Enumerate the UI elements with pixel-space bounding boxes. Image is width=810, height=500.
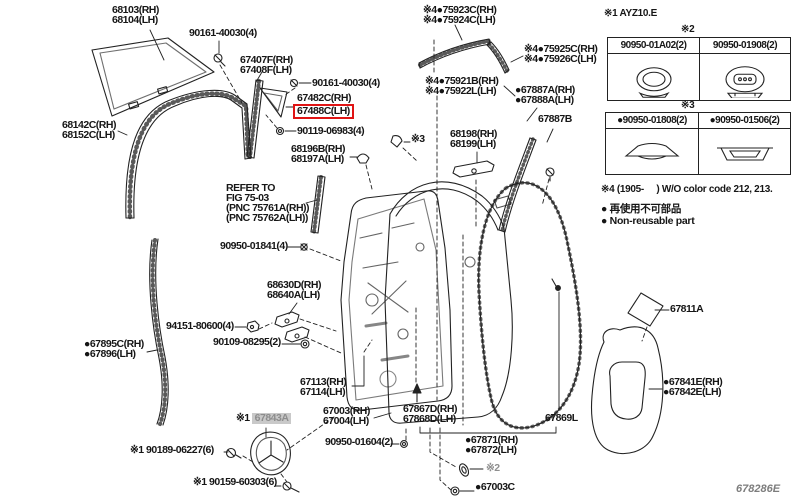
grommet-icon-b <box>699 54 790 100</box>
note-ref3-inline: ※3 <box>411 134 425 144</box>
label-68142C[interactable]: 68142C(RH)68152C(LH) <box>62 120 116 140</box>
note-ref3-inline-text: ※3 <box>411 134 425 144</box>
label-67841E[interactable]: ●67841E(RH)●67842E(LH) <box>663 377 722 397</box>
left-weatherstrip <box>150 239 168 425</box>
label-67488C-selected[interactable]: 67488C(LH) <box>297 106 354 119</box>
label-67895C[interactable]: ●67895C(RH)●67896(LH) <box>84 339 144 359</box>
label-68630D[interactable]: 68630D(RH)68640A(LH) <box>267 280 321 300</box>
sash-strip <box>247 80 263 158</box>
figure-code: 678286E <box>736 483 780 495</box>
hinge-bolt-icon <box>247 321 259 332</box>
parts-diagram-page: 68103(RH)68104(LH)90161-40030(4)67407F(R… <box>0 0 810 500</box>
label-67488C-selected-text: 67488C(LH) <box>293 104 354 119</box>
label-68103[interactable]: 68103(RH)68104(LH) <box>112 5 159 25</box>
label-75921B[interactable]: ※4●75921B(RH)※4●75922L(LH) <box>425 76 498 96</box>
clip-icon <box>357 154 369 163</box>
rivet-icon <box>301 244 307 250</box>
label-67887A[interactable]: ●67887A(RH)●67888A(LH) <box>515 85 575 105</box>
screw-icon <box>227 449 242 459</box>
label-67887B-text: 67887B <box>538 114 572 124</box>
top-moldings <box>419 39 509 73</box>
division-bar <box>311 176 325 233</box>
plug-table-part-2[interactable]: ●90950-01506(2) <box>698 113 790 129</box>
door-outer-panel <box>385 182 512 423</box>
striker-67843a <box>251 432 291 475</box>
label-67867D-text: 67868D(LH) <box>403 414 457 424</box>
screw-icon <box>546 168 554 181</box>
label-90950-01604[interactable]: 90950-01604(2) <box>325 437 393 447</box>
label-90161-40030-a[interactable]: 90161-40030(4) <box>189 28 257 38</box>
note-ref2-inline: ※2 <box>486 463 500 473</box>
screw-icon <box>283 482 299 492</box>
color-code-note: ※4 (1905- ) W/O color code 212, 213. <box>601 184 772 195</box>
label-90109-08295[interactable]: 90109-08295(2) <box>213 337 281 347</box>
label-90119-06983-text: 90119-06983(4) <box>297 126 364 136</box>
label-90161-40030-a-text: 90161-40030(4) <box>189 28 257 38</box>
legend-nonreusable-en: ● Non-reusable part <box>601 215 694 227</box>
label-90161-40030-b-text: 90161-40030(4) <box>312 78 380 88</box>
label-75925C-text: ※4●75926C(LH) <box>524 54 597 64</box>
label-67871[interactable]: ●67871(RH)●67872(LH) <box>465 435 518 455</box>
plug-table: ●90950-01808(2) ●90950-01506(2) <box>605 112 791 175</box>
label-90119-06983[interactable]: 90119-06983(4) <box>297 126 364 136</box>
screw-icon <box>291 80 298 87</box>
label-67113-text: 67114(LH) <box>300 387 346 397</box>
corner-triangle <box>260 88 287 117</box>
label-94151-80600-text: 94151-80600(4) <box>166 321 234 331</box>
label-90159-60303-text: ※1 90159-60303(6) <box>193 477 277 487</box>
label-68103-text: 68104(LH) <box>112 15 159 25</box>
label-67482C-text: 67482C(RH) <box>297 93 351 103</box>
legend-nonreusable-jp: ● 再使用不可部品 <box>601 201 681 216</box>
label-67811A-text: 67811A <box>670 304 703 314</box>
label-68196B[interactable]: 68196B(RH)68197A(LH) <box>291 144 345 164</box>
label-67003[interactable]: 67003(RH)67004(LH) <box>323 406 370 426</box>
label-refer-fig-75-03-text: (PNC 75762A(LH)) <box>226 213 309 223</box>
label-68198[interactable]: 68198(RH)68199(LH) <box>450 129 497 149</box>
label-67003C-text: ●67003C <box>475 482 515 492</box>
label-90950-01841[interactable]: 90950-01841(4) <box>220 241 288 251</box>
label-90109-08295-text: 90109-08295(2) <box>213 337 281 347</box>
label-68198-text: 68199(LH) <box>450 139 497 149</box>
label-75923C-text: ※4●75924C(LH) <box>423 15 496 25</box>
plug-icon-b <box>698 129 790 174</box>
label-67843A-text: ※1 <box>236 412 250 424</box>
hinge-bolt-icon <box>301 340 309 348</box>
bolt-icon <box>277 128 284 135</box>
screw-icon <box>214 54 225 66</box>
grommet-table: 90950-01A02(2) 90950-01908(2) <box>607 37 791 101</box>
door-opening-weatherstrip <box>479 183 581 428</box>
label-68630D-text: 68640A(LH) <box>267 290 321 300</box>
glass-shape <box>92 30 214 116</box>
pin-icon <box>413 384 421 402</box>
label-75925C[interactable]: ※4●75925C(RH)※4●75926C(LH) <box>524 44 597 64</box>
label-67869L-text: 67869L <box>545 413 578 423</box>
bracket-68198 <box>453 161 494 177</box>
label-67867D[interactable]: 67867D(RH)67868D(LH) <box>403 404 457 424</box>
label-90159-60303[interactable]: ※1 90159-60303(6) <box>193 477 277 487</box>
label-68196B-text: 68197A(LH) <box>291 154 345 164</box>
label-67843A[interactable]: ※167843A <box>236 413 291 424</box>
label-90189-06227[interactable]: ※1 90189-06227(6) <box>130 445 214 455</box>
clip-icon <box>391 136 402 147</box>
service-hole-cover <box>592 327 663 454</box>
label-67113[interactable]: 67113(RH)67114(LH) <box>300 377 346 397</box>
label-67407F-text: 67408F(LH) <box>240 65 293 75</box>
locator-diamond <box>628 293 663 326</box>
note-ref2-inline-text: ※2 <box>486 463 500 473</box>
label-75923C[interactable]: ※4●75923C(RH)※4●75924C(LH) <box>423 5 496 25</box>
label-67003-text: 67004(LH) <box>323 416 370 426</box>
label-refer-fig-75-03[interactable]: REFER TOFIG 75-03(PNC 75761A(RH))(PNC 75… <box>226 183 309 223</box>
grommet-table-part-2[interactable]: 90950-01908(2) <box>699 38 790 54</box>
label-67841E-text: ●67842E(LH) <box>663 387 722 397</box>
grommet-icon <box>451 487 459 495</box>
label-67887B[interactable]: 67887B <box>538 114 572 124</box>
label-68142C-text: 68152C(LH) <box>62 130 116 140</box>
grommet-table-caption: ※2 <box>681 24 694 35</box>
label-67407F[interactable]: 67407F(RH)67408F(LH) <box>240 55 293 75</box>
grommet-icon <box>401 441 408 448</box>
grommet-icon-a <box>608 54 699 100</box>
label-67843A-badge: 67843A <box>252 413 292 424</box>
label-90950-01604-text: 90950-01604(2) <box>325 437 393 447</box>
panel-model-note: ※1 AYZ10.E <box>604 8 657 19</box>
label-67869L[interactable]: 67869L <box>545 413 578 423</box>
grommet-table-part-1[interactable]: 90950-01A02(2) <box>608 38 699 54</box>
plug-table-part-1[interactable]: ●90950-01808(2) <box>606 113 698 129</box>
label-94151-80600[interactable]: 94151-80600(4) <box>166 321 234 331</box>
label-67482C[interactable]: 67482C(RH) <box>297 93 351 103</box>
pin-icon <box>552 279 560 290</box>
label-90189-06227-text: ※1 90189-06227(6) <box>130 445 214 455</box>
ring-icon <box>458 462 471 477</box>
label-67895C-text: ●67896(LH) <box>84 349 144 359</box>
label-75921B-text: ※4●75922L(LH) <box>425 86 498 96</box>
label-90950-01841-text: 90950-01841(4) <box>220 241 288 251</box>
plug-icon-a <box>606 129 698 174</box>
label-67887A-text: ●67888A(LH) <box>515 95 575 105</box>
label-90161-40030-b[interactable]: 90161-40030(4) <box>312 78 380 88</box>
plug-table-caption: ※3 <box>681 100 694 111</box>
label-67003C[interactable]: ●67003C <box>475 482 515 492</box>
door-inner-panel <box>341 191 452 410</box>
label-67811A[interactable]: 67811A <box>670 304 703 314</box>
label-67871-text: ●67872(LH) <box>465 445 518 455</box>
